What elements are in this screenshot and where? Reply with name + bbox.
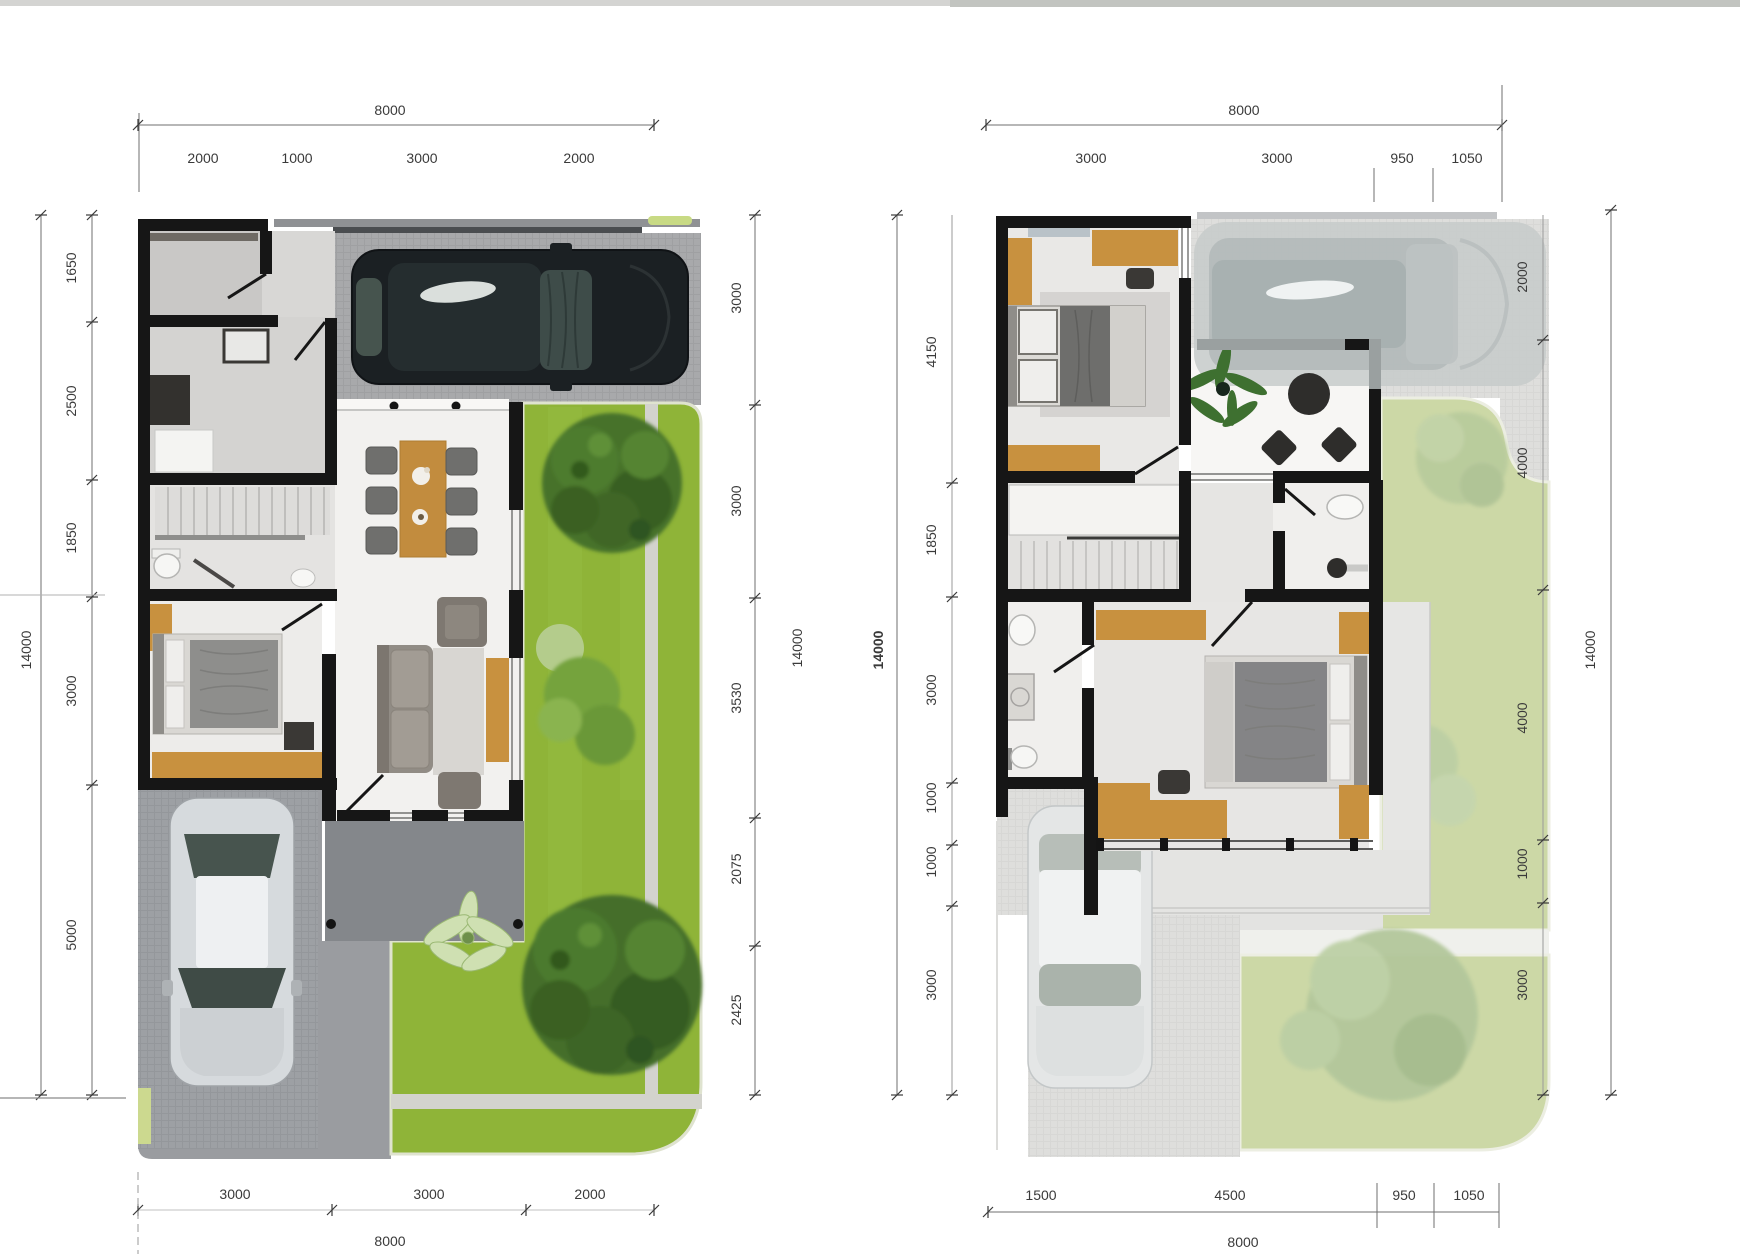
svg-text:1050: 1050: [1451, 150, 1482, 166]
svg-text:3000: 3000: [219, 1186, 250, 1202]
svg-text:1000: 1000: [281, 150, 312, 166]
svg-text:14000: 14000: [789, 628, 805, 667]
svg-text:1000: 1000: [923, 846, 939, 877]
svg-text:2000: 2000: [1514, 261, 1530, 292]
svg-text:8000: 8000: [374, 102, 405, 118]
svg-text:3000: 3000: [1075, 150, 1106, 166]
svg-text:3000: 3000: [728, 485, 744, 516]
svg-text:3530: 3530: [728, 682, 744, 713]
svg-text:950: 950: [1390, 150, 1414, 166]
svg-text:2075: 2075: [728, 853, 744, 884]
svg-text:3000: 3000: [923, 969, 939, 1000]
svg-text:8000: 8000: [1227, 1234, 1258, 1250]
svg-text:3000: 3000: [1261, 150, 1292, 166]
svg-text:1850: 1850: [63, 522, 79, 553]
svg-text:3000: 3000: [1514, 969, 1530, 1000]
svg-text:2000: 2000: [574, 1186, 605, 1202]
svg-text:2000: 2000: [187, 150, 218, 166]
svg-text:3000: 3000: [413, 1186, 444, 1202]
svg-text:8000: 8000: [1228, 102, 1259, 118]
svg-text:2500: 2500: [63, 385, 79, 416]
svg-text:1650: 1650: [63, 252, 79, 283]
svg-text:4000: 4000: [1514, 447, 1530, 478]
svg-text:4150: 4150: [923, 336, 939, 367]
svg-text:1500: 1500: [1025, 1187, 1056, 1203]
svg-text:4000: 4000: [1514, 702, 1530, 733]
svg-text:3000: 3000: [923, 674, 939, 705]
svg-text:1850: 1850: [923, 524, 939, 555]
svg-text:8000: 8000: [374, 1233, 405, 1249]
svg-text:1000: 1000: [923, 782, 939, 813]
svg-text:1000: 1000: [1514, 848, 1530, 879]
svg-text:3000: 3000: [406, 150, 437, 166]
svg-text:3000: 3000: [728, 282, 744, 313]
svg-text:950: 950: [1392, 1187, 1416, 1203]
svg-text:3000: 3000: [63, 675, 79, 706]
svg-text:1050: 1050: [1453, 1187, 1484, 1203]
svg-text:5000: 5000: [63, 919, 79, 950]
svg-text:14000: 14000: [18, 630, 34, 669]
svg-text:4500: 4500: [1214, 1187, 1245, 1203]
svg-text:2000: 2000: [563, 150, 594, 166]
svg-text:14000: 14000: [1582, 630, 1598, 669]
svg-text:2425: 2425: [728, 994, 744, 1025]
svg-text:14000: 14000: [870, 630, 886, 669]
